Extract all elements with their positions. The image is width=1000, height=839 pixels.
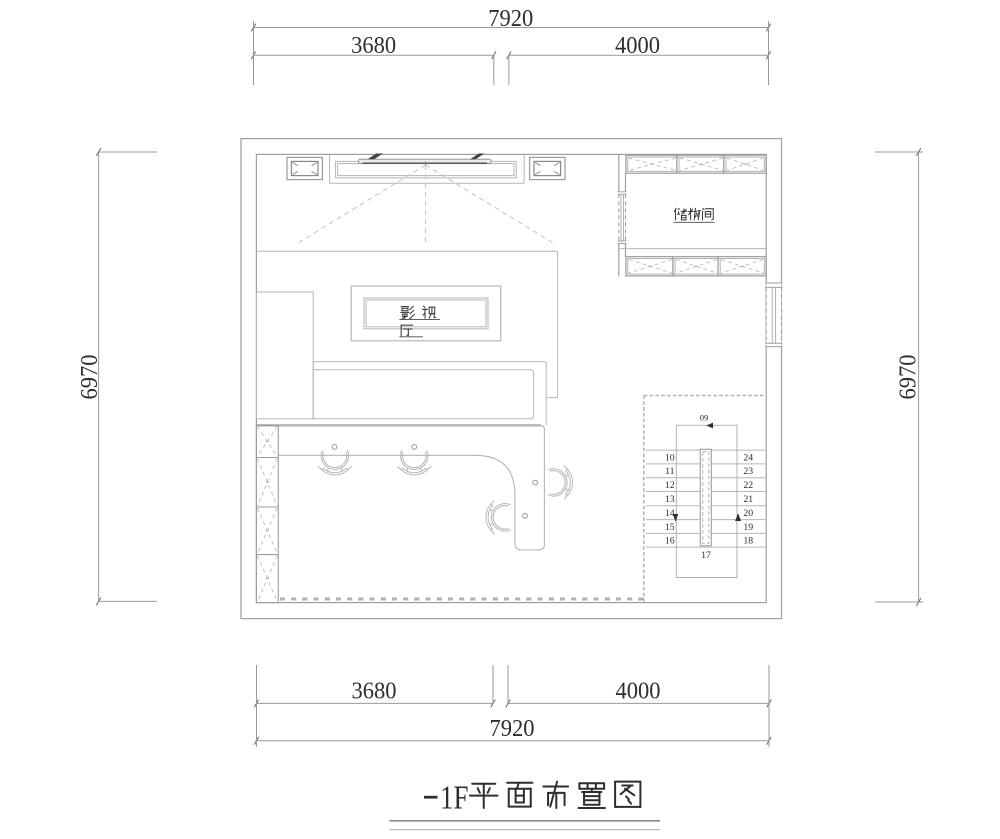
svg-text:20: 20 [743, 508, 753, 519]
svg-text:22: 22 [743, 480, 753, 491]
svg-text:21: 21 [743, 494, 753, 505]
svg-text:14: 14 [665, 508, 675, 519]
svg-text:7920: 7920 [490, 716, 535, 742]
svg-text:13: 13 [665, 494, 675, 505]
svg-text:4000: 4000 [615, 33, 660, 59]
svg-text:24: 24 [743, 452, 753, 463]
svg-text:12: 12 [665, 480, 675, 491]
svg-text:23: 23 [743, 466, 753, 477]
svg-text:6970: 6970 [896, 355, 922, 400]
svg-text:15: 15 [665, 522, 675, 533]
svg-text:7920: 7920 [488, 6, 533, 32]
svg-text:19: 19 [743, 522, 753, 533]
svg-text:4000: 4000 [616, 679, 661, 705]
svg-text:6970: 6970 [77, 355, 103, 400]
svg-text:11: 11 [665, 466, 675, 477]
svg-text:3680: 3680 [352, 679, 397, 705]
svg-text:18: 18 [743, 536, 753, 547]
svg-text:1F: 1F [440, 780, 469, 817]
svg-text:3680: 3680 [351, 33, 396, 59]
svg-text:16: 16 [665, 536, 675, 547]
svg-text:10: 10 [665, 452, 675, 463]
svg-text:09: 09 [700, 413, 709, 423]
svg-text:17: 17 [701, 550, 711, 561]
